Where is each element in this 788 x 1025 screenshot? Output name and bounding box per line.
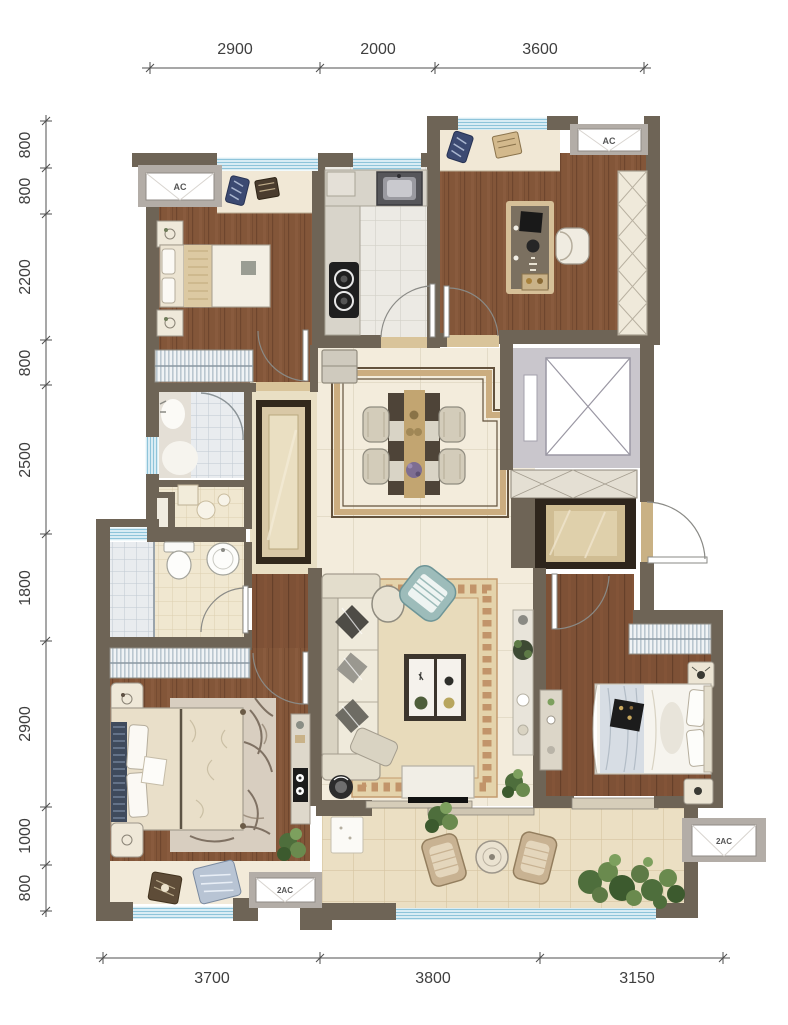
svg-text:3150: 3150	[619, 970, 655, 987]
svg-text:3700: 3700	[194, 970, 230, 987]
svg-text:800: 800	[17, 132, 34, 159]
svg-text:2000: 2000	[360, 41, 396, 58]
svg-text:2900: 2900	[17, 706, 34, 742]
svg-text:3600: 3600	[522, 41, 558, 58]
svg-text:1000: 1000	[17, 818, 34, 854]
svg-text:2200: 2200	[17, 259, 34, 295]
svg-text:800: 800	[17, 875, 34, 902]
svg-text:AC: AC	[174, 182, 187, 192]
svg-text:3800: 3800	[415, 970, 451, 987]
svg-text:AC: AC	[603, 136, 616, 146]
svg-text:2AC: 2AC	[277, 886, 293, 895]
svg-text:800: 800	[17, 178, 34, 205]
svg-text:2900: 2900	[217, 41, 253, 58]
svg-text:1800: 1800	[17, 570, 34, 606]
svg-text:800: 800	[17, 350, 34, 377]
svg-text:2500: 2500	[17, 442, 34, 478]
svg-text:2AC: 2AC	[716, 837, 732, 846]
